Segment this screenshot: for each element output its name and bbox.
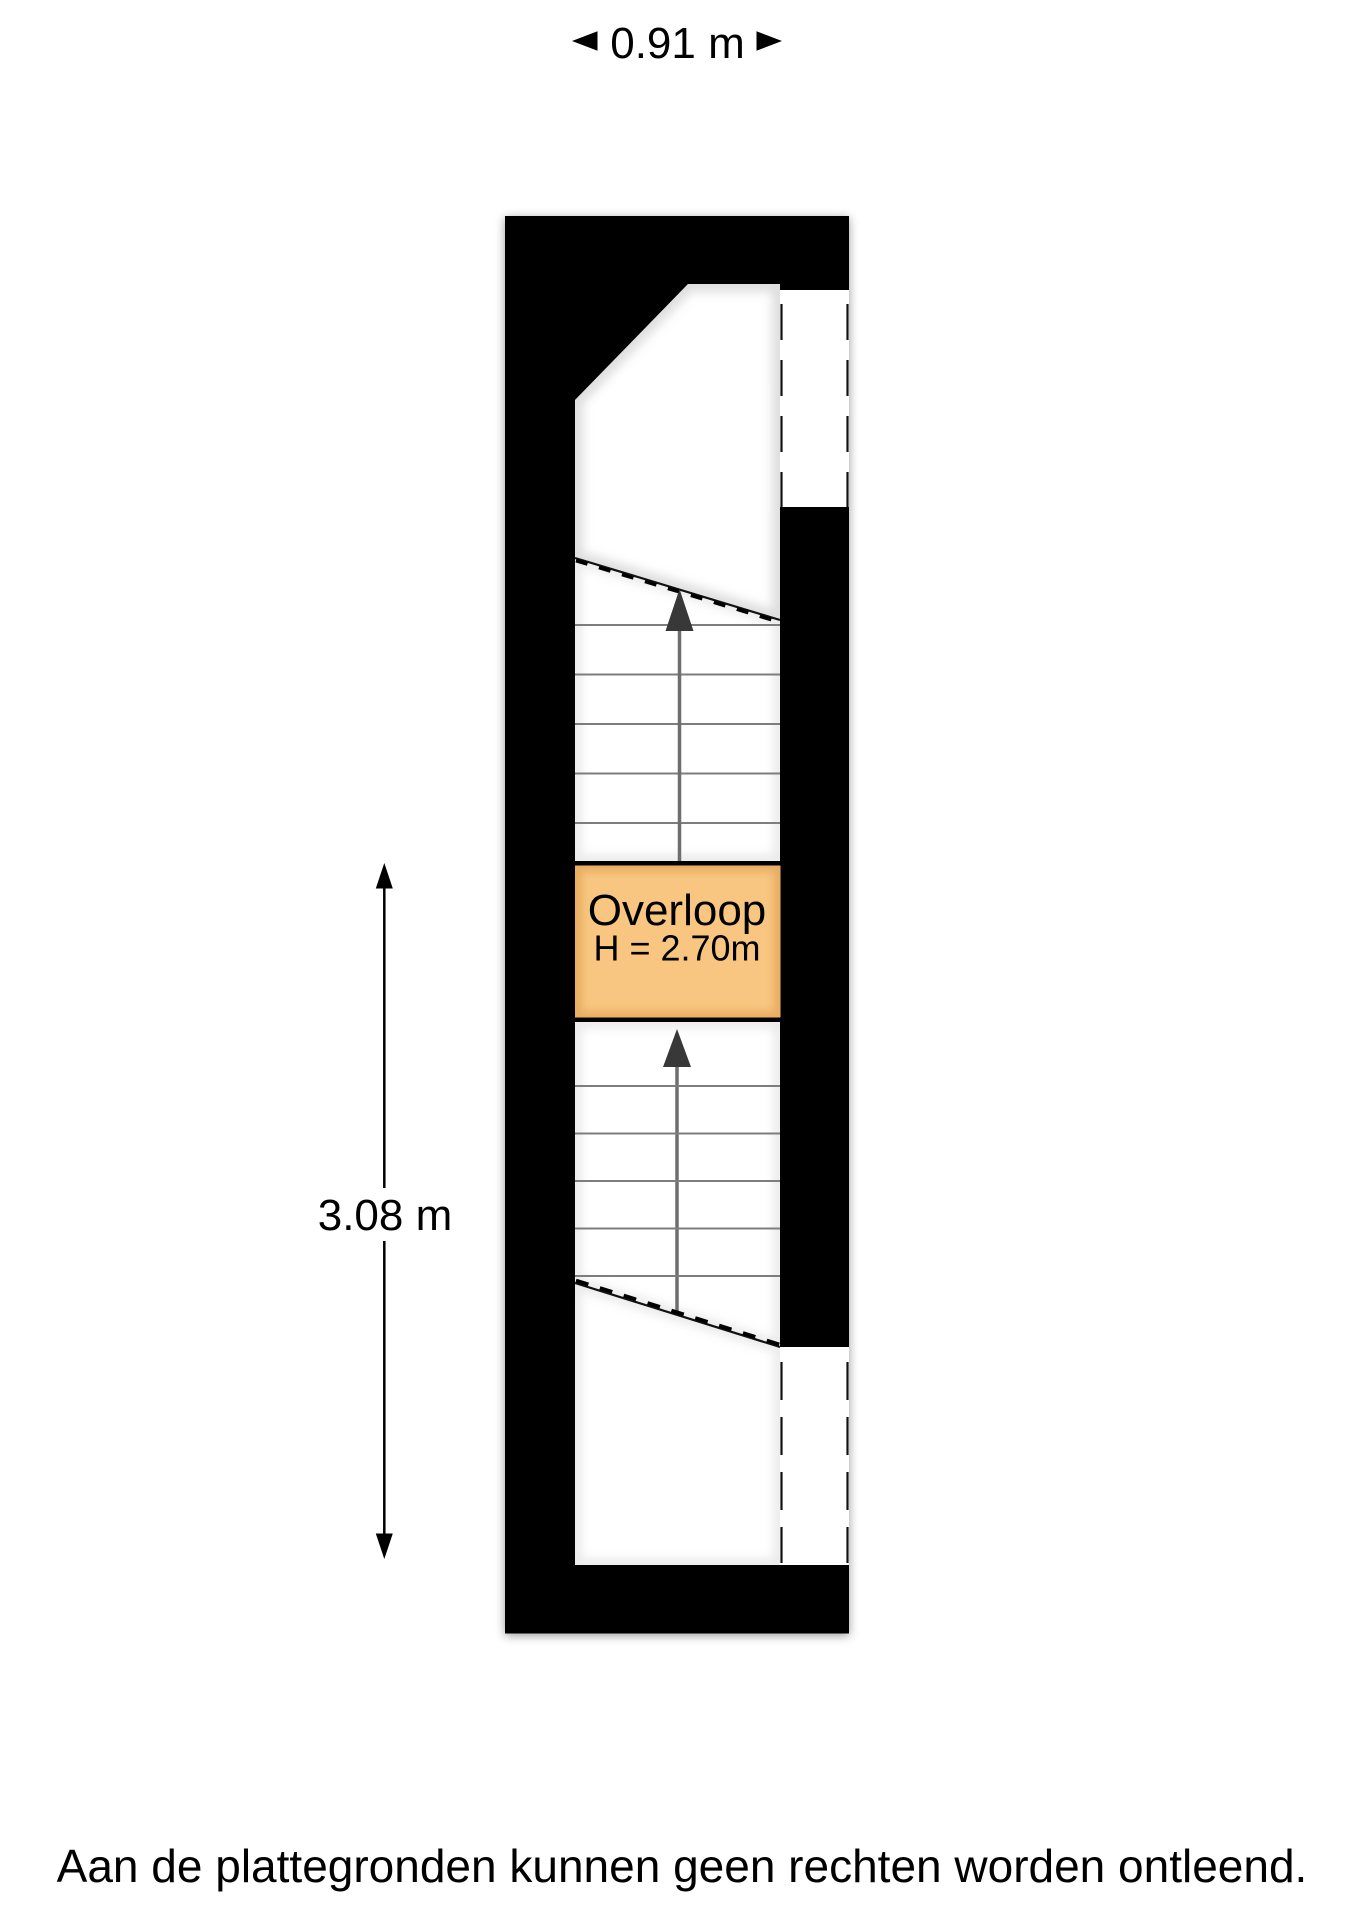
svg-text:0.91 m: 0.91 m bbox=[610, 19, 745, 68]
svg-text:H = 2.70m: H = 2.70m bbox=[593, 928, 760, 969]
svg-text:3.08 m: 3.08 m bbox=[318, 1191, 453, 1240]
svg-text:Aan de plattegronden kunnen ge: Aan de plattegronden kunnen geen rechten… bbox=[57, 1840, 1308, 1892]
